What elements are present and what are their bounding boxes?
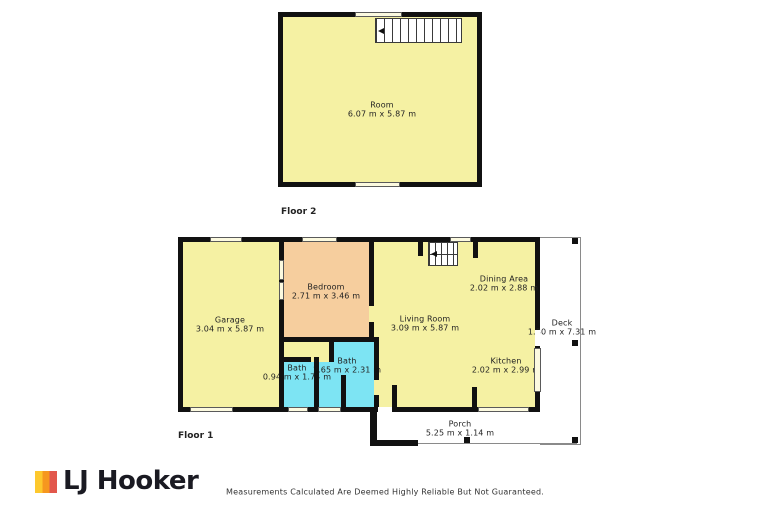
- room-label-kitchen: Kitchen 2.02 m x 2.99 m: [472, 358, 540, 375]
- deck-post: [572, 238, 578, 244]
- wall-segment: [473, 242, 478, 258]
- deck-post: [572, 437, 578, 443]
- deck-post: [572, 340, 578, 346]
- wall-segment: [314, 357, 319, 412]
- room-label-dining: Dining Area 2.02 m x 2.88 m: [470, 276, 538, 293]
- window-marker: [279, 260, 284, 280]
- disclaimer-text: Measurements Calculated Are Deemed Highl…: [226, 488, 544, 497]
- room-label-floor2: Room 6.07 m x 5.87 m: [348, 102, 416, 119]
- room-dims: 6.07 m x 5.87 m: [348, 110, 416, 119]
- logo-stripes-icon: [35, 471, 57, 493]
- floorplan-floor2: Room 6.07 m x 5.87 m: [278, 12, 482, 187]
- window-marker: [355, 182, 400, 187]
- room-label-bath-large: Bath 1.65 m x 2.31 m: [313, 358, 381, 375]
- stairs-icon-floor2: [375, 18, 462, 43]
- room-dims: 2.02 m x 2.99 m: [472, 366, 540, 375]
- window-marker: [534, 348, 541, 392]
- floor2-tag: Floor 2: [281, 207, 316, 217]
- window-marker: [190, 407, 233, 412]
- floorplan-floor1: Garage 3.04 m x 5.87 m Bedroom 2.71 m x …: [178, 237, 540, 412]
- stairs-direction-arrow-icon: [378, 28, 384, 34]
- wall-segment: [392, 385, 397, 412]
- stairs-direction-arrow-icon: [431, 251, 437, 257]
- window-marker: [279, 282, 284, 300]
- window-marker: [318, 407, 341, 412]
- window-marker: [210, 237, 242, 242]
- wall-segment: [370, 440, 418, 446]
- window-marker: [302, 237, 337, 242]
- wall-segment: [418, 242, 423, 256]
- room-label-bedroom: Bedroom 2.71 m x 3.46 m: [292, 284, 360, 301]
- stairs-icon-floor1: [428, 242, 458, 266]
- room-dims: 3.09 m x 5.87 m: [391, 324, 459, 333]
- porch-post: [464, 437, 470, 443]
- room-dims: 1.65 m x 2.31 m: [313, 366, 381, 375]
- wall-segment: [369, 242, 374, 306]
- room-fill-bath-large: [334, 342, 374, 407]
- door-opening: [378, 407, 392, 412]
- room-label-garage: Garage 3.04 m x 5.87 m: [196, 317, 264, 334]
- room-dims: 3.04 m x 5.87 m: [196, 325, 264, 334]
- window-marker: [355, 12, 402, 17]
- brand-name: LJ Hooker: [63, 464, 198, 498]
- room-dims: 2.02 m x 2.88 m: [470, 284, 538, 293]
- window-marker: [288, 407, 308, 412]
- room-dims: 5.25 m x 1.14 m: [426, 429, 494, 438]
- door-opening: [535, 330, 540, 346]
- room-dims: 2.71 m x 3.46 m: [292, 292, 360, 301]
- wall-segment: [329, 342, 334, 362]
- floorplan-page: Room 6.07 m x 5.87 m Floor 2 Porch 5.25 …: [0, 0, 768, 512]
- wall-segment: [472, 387, 477, 412]
- wall-segment: [341, 375, 346, 412]
- window-marker: [478, 407, 529, 412]
- room-label-porch: Porch 5.25 m x 1.14 m: [426, 421, 494, 438]
- floor1-tag: Floor 1: [178, 431, 213, 441]
- room-label-living: Living Room 3.09 m x 5.87 m: [391, 316, 459, 333]
- wall-segment: [374, 337, 379, 380]
- wall-segment: [284, 357, 311, 362]
